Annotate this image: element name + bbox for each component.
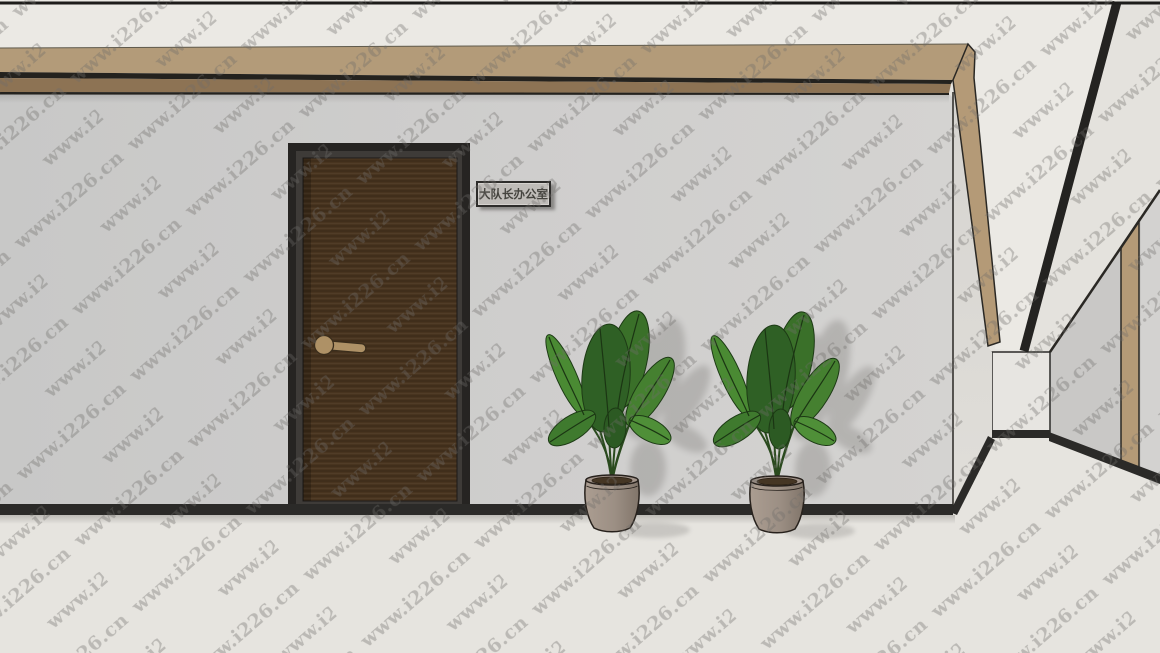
door-handle-rosette bbox=[315, 336, 334, 355]
right-wall-far-strip bbox=[1141, 190, 1160, 477]
office-door bbox=[288, 143, 470, 515]
ceiling-top-line bbox=[0, 2, 1160, 5]
right-wall-trim-wood bbox=[1121, 220, 1139, 470]
door-panel-hinge-shade bbox=[303, 158, 311, 501]
end-wall-panel bbox=[992, 352, 1050, 437]
office-sign-text: 大队长办公室 bbox=[479, 186, 548, 202]
main-wall-top-shadow bbox=[0, 94, 949, 103]
door-panel bbox=[303, 158, 457, 501]
floor-contact-shadow bbox=[0, 515, 955, 524]
main-baseboard bbox=[0, 504, 953, 515]
room-render bbox=[0, 0, 1160, 653]
end-wall-baseboard bbox=[992, 430, 1050, 438]
office-sign: 大队长办公室 bbox=[476, 181, 551, 207]
scene-image: 大队长办公室 www.i226.cn www.i226.cn bbox=[0, 0, 1160, 653]
